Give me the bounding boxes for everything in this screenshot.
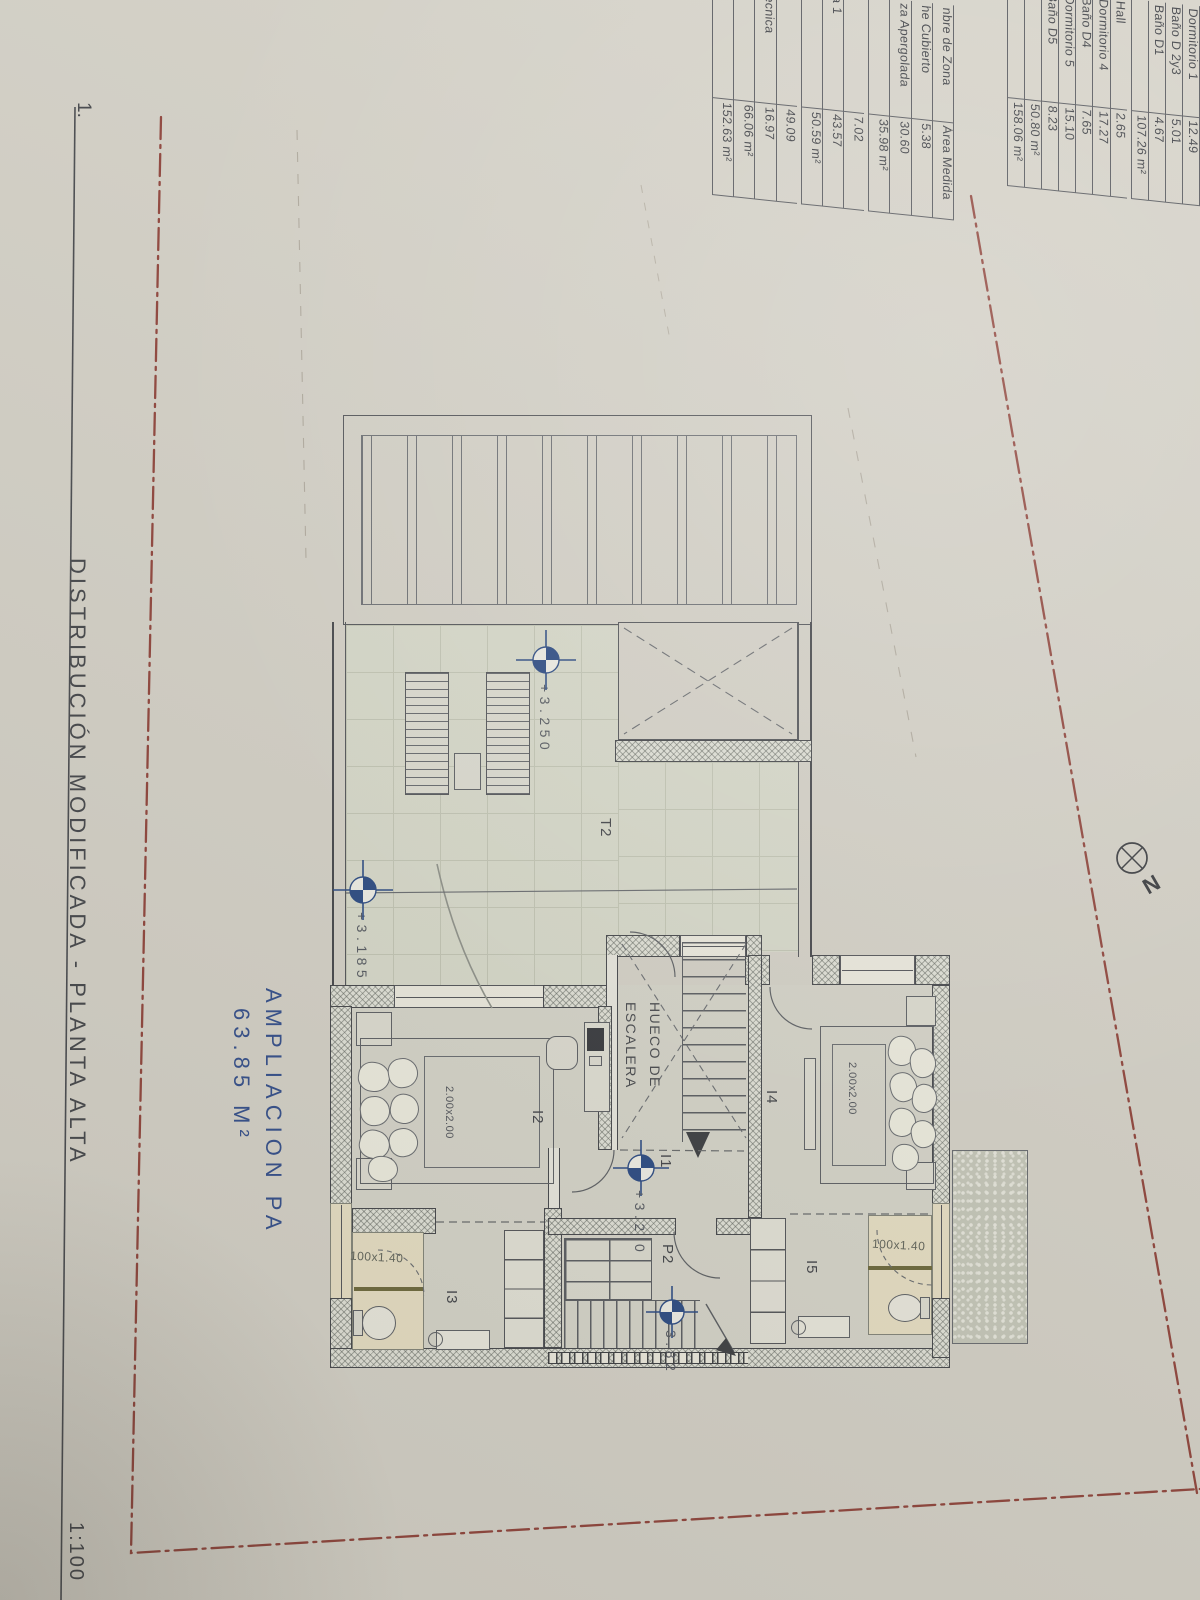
bed-left-duvet [424, 1056, 540, 1168]
terrace-tiles-2 [618, 762, 798, 952]
table-row: 107.26 m² [1131, 0, 1148, 201]
table-cell-zone-name: za Apergolada [890, 0, 910, 119]
sink-left [436, 1330, 490, 1350]
table-row: 50.80 m² [1024, 0, 1041, 190]
pergola-slats [361, 435, 797, 605]
table-row: 158.06 m² [1007, 0, 1024, 188]
table-cell-zone-name: Hall [1111, 0, 1127, 111]
table-cell-zone-name [802, 0, 822, 110]
room-label-hall: I1 [658, 1154, 673, 1169]
table-cell-zone-name: 2 [777, 0, 797, 107]
desk-chair [546, 1036, 578, 1070]
table-cell-zone-name [844, 0, 864, 114]
wall-top-left [330, 985, 396, 1008]
table-cell-zone-name: Dormitorio 1 [1183, 4, 1199, 118]
wall-hall-stair2 [716, 1218, 752, 1235]
bedroom-right-window [840, 955, 915, 985]
elevation-label-terrace-main: +3.250 [538, 684, 552, 754]
annotation-line1: AMPLIACION PA [262, 988, 284, 1236]
photographed-floor-plan-sheet: 1. DISTRIBUCIÓN MODIFICADA - PLANTA ALTA… [0, 0, 1200, 1600]
annotation-line2: 63.85 M² [230, 1008, 252, 1143]
toilet-left-tank [353, 1310, 363, 1336]
table-row: 35.98 m² [868, 0, 889, 214]
table-row: za Apergolada30.60 [889, 0, 910, 216]
table-cell-zone-name: Dormitorio 4 [1093, 0, 1109, 109]
table-cell-area-value: 66.06 m² [734, 100, 754, 199]
table-cell-area-value: 152.63 m² [713, 98, 733, 197]
balustrade-strip [548, 1352, 748, 1364]
terrace-tiles [346, 625, 618, 985]
table-row: a 143.57 [822, 0, 843, 209]
shower-screen [354, 1287, 423, 1291]
gravel-area [952, 1150, 1028, 1344]
table-cell-zone-name [1008, 0, 1024, 100]
table-cell-area-value: 5.01 [1166, 115, 1182, 205]
bed-left-dimension: 2.00x2.00 [443, 1086, 454, 1139]
table-cell-area-value: 15.10 [1059, 103, 1075, 193]
wall-hall-stair [548, 1218, 676, 1235]
area-table-left: nbre de ZonaÁrea Medidahe Cubierto5.38za… [712, 0, 954, 220]
table-row: Baño D14.67 [1148, 1, 1165, 203]
wall-left [330, 1006, 352, 1205]
computer-icon [587, 1028, 604, 1051]
room-label-terrace: T2 [598, 818, 613, 838]
bath-left-window [330, 1203, 352, 1300]
table-cell-area-value: 107.26 m² [1132, 111, 1148, 201]
table-row: he Cubierto5.38 [911, 1, 932, 218]
table-cell-zone-name [1132, 0, 1148, 113]
toilet-left [362, 1306, 396, 1340]
elevation-label-stair: 3.82 [664, 1330, 678, 1375]
table-cell-area-value: 17.27 [1093, 107, 1109, 197]
bed-right-duvet [832, 1044, 886, 1166]
faucet-right [791, 1320, 806, 1335]
table-row: 66.06 m² [733, 0, 754, 199]
elevation-label-hall: +3.2 [633, 1190, 647, 1236]
stair-steps-lower [564, 1300, 700, 1348]
table-cell-area-value: 12.49 [1183, 116, 1199, 206]
table-cell-area-value: 4.67 [1149, 113, 1165, 203]
table-cell-area-value: 49.09 [777, 105, 797, 204]
terrace-parapet-left [332, 622, 346, 988]
table-cell-zone-name: Baño D 2y3 [1166, 3, 1182, 117]
table-cell-zone-name [1025, 0, 1041, 102]
window-left-dimension: 100x1.40 [350, 1249, 404, 1266]
room-label-stair-room: P2 [660, 1244, 675, 1264]
nightstand [906, 996, 936, 1026]
elevation-label-hall-tail: 0 [633, 1244, 647, 1256]
stair-top-wall [606, 935, 680, 957]
table-cell-area-value: 16.97 [755, 103, 775, 202]
sunbed [405, 672, 449, 795]
table-cell-area-value: 158.06 m² [1008, 98, 1024, 188]
wall-bedroom-right-top2 [812, 955, 840, 985]
room-label-bedroom-left: I2 [530, 1110, 545, 1125]
table-cell-area-value: 8.23 [1042, 102, 1058, 192]
void-skylight [618, 622, 798, 740]
wardrobe-left [504, 1230, 544, 1348]
stairwell-label-1: HUECO DE [648, 1002, 662, 1088]
room-label-bedroom-right: I4 [764, 1090, 779, 1105]
bed-bench [804, 1058, 816, 1150]
bedroom-left-window [394, 985, 545, 1008]
table-cell-area-value: 2.65 [1111, 109, 1127, 199]
faint-dash [641, 185, 670, 340]
stair-top-wall2 [746, 935, 762, 957]
table-cell-area-value: 50.59 m² [802, 107, 822, 206]
sunbed [486, 672, 530, 795]
table-cell-zone-name: he Cubierto [912, 1, 932, 121]
table-cell-zone-name [869, 0, 889, 117]
table-cell-zone-name [734, 0, 754, 102]
table-row: Dormitorio 515.10 [1058, 0, 1075, 193]
table-row: Tecnica16.97 [754, 0, 775, 202]
faucet-left [428, 1332, 443, 1347]
table-row: Hall2.65 [1110, 0, 1127, 199]
table-cell-area-value: 50.80 m² [1025, 100, 1041, 190]
wall-right-low [932, 1298, 950, 1358]
faint-dash [297, 130, 306, 560]
table-row: Dormitorio 417.27 [1092, 0, 1109, 197]
room-label-bath-right: I5 [804, 1260, 819, 1275]
wall-bedroom-right-top3 [915, 955, 950, 985]
wardrobe-right [750, 1218, 786, 1344]
table-cell-zone-name: Baño D1 [1149, 1, 1165, 115]
table-row: Baño D47.65 [1075, 0, 1092, 195]
table-cell-area-value: 43.57 [823, 110, 843, 209]
toilet-right [888, 1294, 922, 1322]
keyboard [589, 1056, 602, 1066]
table-cell-area-value: 7.65 [1076, 105, 1092, 195]
bed-right-dimension: 2.00x2.00 [846, 1062, 857, 1115]
toilet-right-tank [920, 1297, 930, 1319]
stair-treads [682, 942, 746, 1142]
table-cell-area-value: 7.02 [844, 112, 864, 211]
elevation-label-terrace-low: +3.185 [355, 912, 369, 982]
stairwell-label-2: ESCALERA [624, 1002, 638, 1089]
table-row: 7.02 [843, 0, 864, 211]
faint-dash [848, 408, 916, 757]
area-table-right: Dormitorio 112.49Baño D 2y35.01Baño D14.… [1007, 0, 1200, 206]
wall [615, 740, 812, 762]
table-cell-zone-name: nbre de Zona [933, 3, 953, 123]
table-cell-area-value: 5.38 [912, 119, 932, 218]
sheet-title: DISTRIBUCIÓN MODIFICADA - PLANTA ALTA [66, 558, 88, 1166]
shower-screen-right [868, 1266, 932, 1270]
bath-right-window [932, 1203, 950, 1300]
wall-bath-left-top [352, 1208, 436, 1234]
table-cell-zone-name: Tecnica [755, 0, 775, 105]
stair-right-wall [748, 955, 762, 1218]
table-row: Baño D 2y35.01 [1165, 3, 1182, 205]
table-row: 152.63 m² [712, 0, 733, 197]
table-header-row: nbre de ZonaÁrea Medida [932, 3, 953, 220]
window-right-dimension: 100x1.40 [872, 1237, 926, 1254]
table-cell-area-value: 30.60 [890, 117, 910, 216]
table-row: 249.09 [776, 0, 797, 204]
side-table [454, 753, 481, 790]
table-row: Baño D58.23 [1041, 0, 1058, 191]
north-symbol [1117, 843, 1147, 873]
table-cell-zone-name [713, 0, 733, 100]
table-row: 50.59 m² [801, 0, 822, 207]
table-row: Dormitorio 112.49 [1182, 4, 1199, 206]
room-label-bath-left: I3 [444, 1290, 459, 1305]
sheet-scale: 1:100 [66, 1522, 86, 1582]
table-cell-area-value: 35.98 m² [869, 115, 889, 214]
north-label: N [1139, 870, 1164, 897]
table-cell-zone-name: Dormitorio 5 [1059, 0, 1075, 105]
table-cell-area-value: Área Medida [933, 121, 953, 220]
table-cell-zone-name: Baño D4 [1076, 0, 1092, 107]
drawing-number: 1. [74, 102, 93, 118]
table-cell-zone-name: a 1 [823, 0, 843, 112]
terrace-parapet-right [798, 622, 812, 957]
table-cell-zone-name: Baño D5 [1042, 0, 1058, 103]
